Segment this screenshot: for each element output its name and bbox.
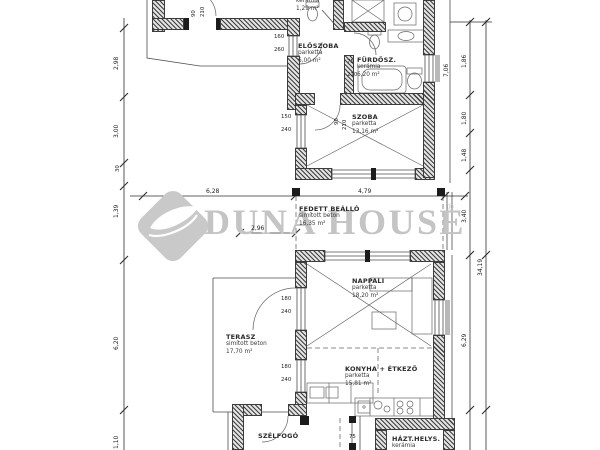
room-area: 13,16 m²	[352, 129, 378, 137]
room-material: simított beton	[226, 341, 267, 349]
room-area: 15,81 m²	[345, 381, 417, 389]
room-name: NAPPALI	[352, 277, 384, 285]
opening-size-label: 75	[349, 434, 356, 440]
room-area: 16,35 m²	[299, 221, 360, 229]
room-material: kerámia	[357, 64, 396, 72]
opening-size-label: 210	[347, 72, 357, 78]
dimension-label: 30	[115, 165, 121, 172]
room-material: parketta	[352, 121, 378, 129]
room-material: parketta	[352, 285, 384, 293]
opening-size-label: 160	[274, 34, 284, 40]
room-material: parketta	[345, 373, 417, 381]
opening-size-label: 240	[281, 309, 291, 315]
room-label-nappali: NAPPALI parketta 18,20 m²	[352, 277, 384, 301]
dimension-label: 6,28	[206, 188, 219, 195]
room-label-hazt-helys: HÁZT.HELYS. kerámia	[392, 435, 440, 450]
opening-size-label: 90	[191, 10, 197, 17]
room-label-fedett-beallo: FEDETT BEÁLLÓ simított beton 16,35 m²	[299, 205, 360, 229]
room-name: KONYHA + ÉTKEZŐ	[345, 365, 417, 373]
room-name: SZÉLFOGÓ	[258, 432, 298, 440]
dimension-label: 1,80	[461, 112, 468, 125]
room-label-szoba: SZOBA parketta 13,16 m²	[352, 113, 378, 137]
room-material: parketta	[298, 50, 339, 58]
opening-size-label: 75	[347, 59, 354, 65]
room-label-terasz: TERASZ simított beton 17,70 m²	[226, 333, 267, 357]
opening-size-label: 180	[281, 296, 291, 302]
opening-size-label: 210	[342, 120, 348, 130]
dimension-label: 34,19	[477, 259, 484, 276]
room-area: 18,20 m²	[352, 293, 384, 301]
dimension-label: 6,29	[461, 334, 468, 347]
room-material: kerámia	[392, 443, 440, 450]
room-material: simított beton	[299, 213, 360, 221]
opening-size-label: 240	[281, 377, 291, 383]
registered-trademark-symbol: ®	[447, 202, 454, 212]
opening-size-label: 260	[274, 47, 284, 53]
opening-size-label: 90	[334, 118, 340, 125]
opening-size-label: 150	[281, 114, 291, 120]
opening-size-label: 210	[200, 7, 206, 17]
dimension-label: 2,98	[113, 57, 120, 70]
dimension-label: 3,00	[113, 125, 120, 138]
dimension-label: 3,40	[461, 210, 468, 223]
room-label-konyha-etkezo: KONYHA + ÉTKEZŐ parketta 15,81 m²	[345, 365, 417, 389]
room-label-szelfogo: SZÉLFOGÓ	[258, 432, 298, 440]
opening-size-label: 240	[281, 127, 291, 133]
dimension-label: 2,96	[251, 225, 264, 232]
floorplan-page: DUNA HOUSE ® ELŐSZOBA parketta 6,00 m² F…	[0, 0, 600, 450]
room-area: 17,70 m²	[226, 349, 267, 357]
room-name: SZOBA	[352, 113, 378, 121]
room-label-wc: WC kerámia 1,29 m²	[296, 0, 319, 14]
room-label-furdoszoba: FÜRDŐSZ. kerámia 6,20 m²	[357, 56, 396, 80]
dimension-label: 4,79	[358, 188, 371, 195]
room-area: 6,00 m²	[298, 58, 339, 66]
room-area: 1,29 m²	[296, 6, 319, 14]
room-name: ELŐSZOBA	[298, 42, 339, 50]
opening-size-label: 180	[281, 364, 291, 370]
dimension-label: 6,20	[113, 337, 120, 350]
room-area: 6,20 m²	[357, 72, 396, 80]
dimension-label: 1,48	[461, 149, 468, 162]
dimension-label: 1,10	[113, 436, 120, 449]
room-label-eloszoba: ELŐSZOBA parketta 6,00 m²	[298, 42, 339, 66]
dimension-label: 1,39	[113, 205, 120, 218]
dimension-label: 7,06	[443, 64, 450, 77]
dimension-label: 1,86	[461, 55, 468, 68]
